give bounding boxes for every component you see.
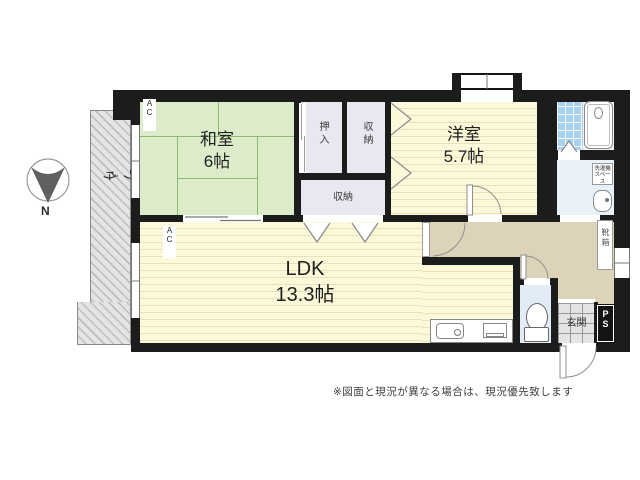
bathroom-floor — [557, 98, 583, 152]
washbasin — [593, 190, 612, 212]
doorway — [558, 150, 580, 160]
wall — [537, 90, 557, 222]
room-size: 13.3帖 — [190, 282, 420, 308]
shoe-box-label: 靴箱 — [600, 228, 611, 248]
entrance-label: 玄関 — [558, 317, 595, 330]
fusuma-door — [299, 103, 306, 173]
storage-lower-label: 収納 — [301, 191, 385, 204]
wall — [131, 343, 562, 352]
oshiire-label: 押入 — [315, 121, 330, 147]
room-name: LDK — [190, 256, 420, 282]
window — [131, 243, 140, 318]
japanese-room-label: 和室 6帖 — [140, 129, 294, 173]
kitchen-stove-bar — [486, 333, 504, 337]
wall — [614, 98, 630, 352]
room-name: 洋室 — [391, 124, 537, 146]
entrance-step — [558, 299, 595, 303]
bay-window — [452, 73, 522, 90]
wall — [383, 215, 468, 222]
faucet-icon — [454, 329, 461, 336]
ldk-label: LDK 13.3帖 — [190, 256, 420, 308]
western-room-label: 洋室 5.7帖 — [391, 124, 537, 168]
window — [614, 248, 630, 278]
wall — [294, 173, 391, 180]
pipe-space-label: P S — [596, 309, 615, 330]
laundry-space-label: 洗濯機 スペース — [592, 166, 613, 185]
basin-faucet-icon — [605, 198, 609, 202]
wall — [131, 102, 140, 125]
compass-icon — [27, 159, 69, 203]
ac-unit-label: A C — [143, 99, 156, 131]
room-size: 6帖 — [140, 151, 294, 173]
room-name: 和室 — [140, 129, 294, 151]
door-leaf — [422, 222, 430, 257]
room-size: 5.7帖 — [391, 146, 537, 168]
bath-faucet-icon — [594, 107, 603, 119]
sliding-door-opening — [183, 215, 263, 222]
wall — [422, 257, 520, 265]
bay-window-cap — [452, 73, 461, 90]
veranda-area-extension — [77, 302, 131, 345]
window — [131, 125, 140, 198]
tatami-line — [177, 178, 258, 179]
doorway — [524, 278, 550, 285]
wall — [263, 215, 303, 222]
floor-plan: ベランダ — [0, 0, 640, 480]
doorway — [560, 215, 600, 222]
wall — [551, 278, 558, 343]
bay-window-cap — [513, 73, 522, 90]
toilet-tank — [524, 327, 549, 342]
ac-unit-label: A C — [163, 226, 176, 258]
north-label: N — [41, 204, 50, 218]
wall — [513, 258, 520, 343]
storage-upper-label: 収納 — [359, 121, 374, 147]
disclaimer-note: ※図面と現況が異なる場合は、現況優先致します — [333, 384, 573, 399]
wall — [131, 215, 183, 222]
hallway-floor — [430, 222, 614, 258]
wall — [342, 102, 347, 174]
window-opening — [461, 90, 513, 102]
closet-opening — [303, 215, 383, 222]
doorway — [468, 215, 502, 222]
